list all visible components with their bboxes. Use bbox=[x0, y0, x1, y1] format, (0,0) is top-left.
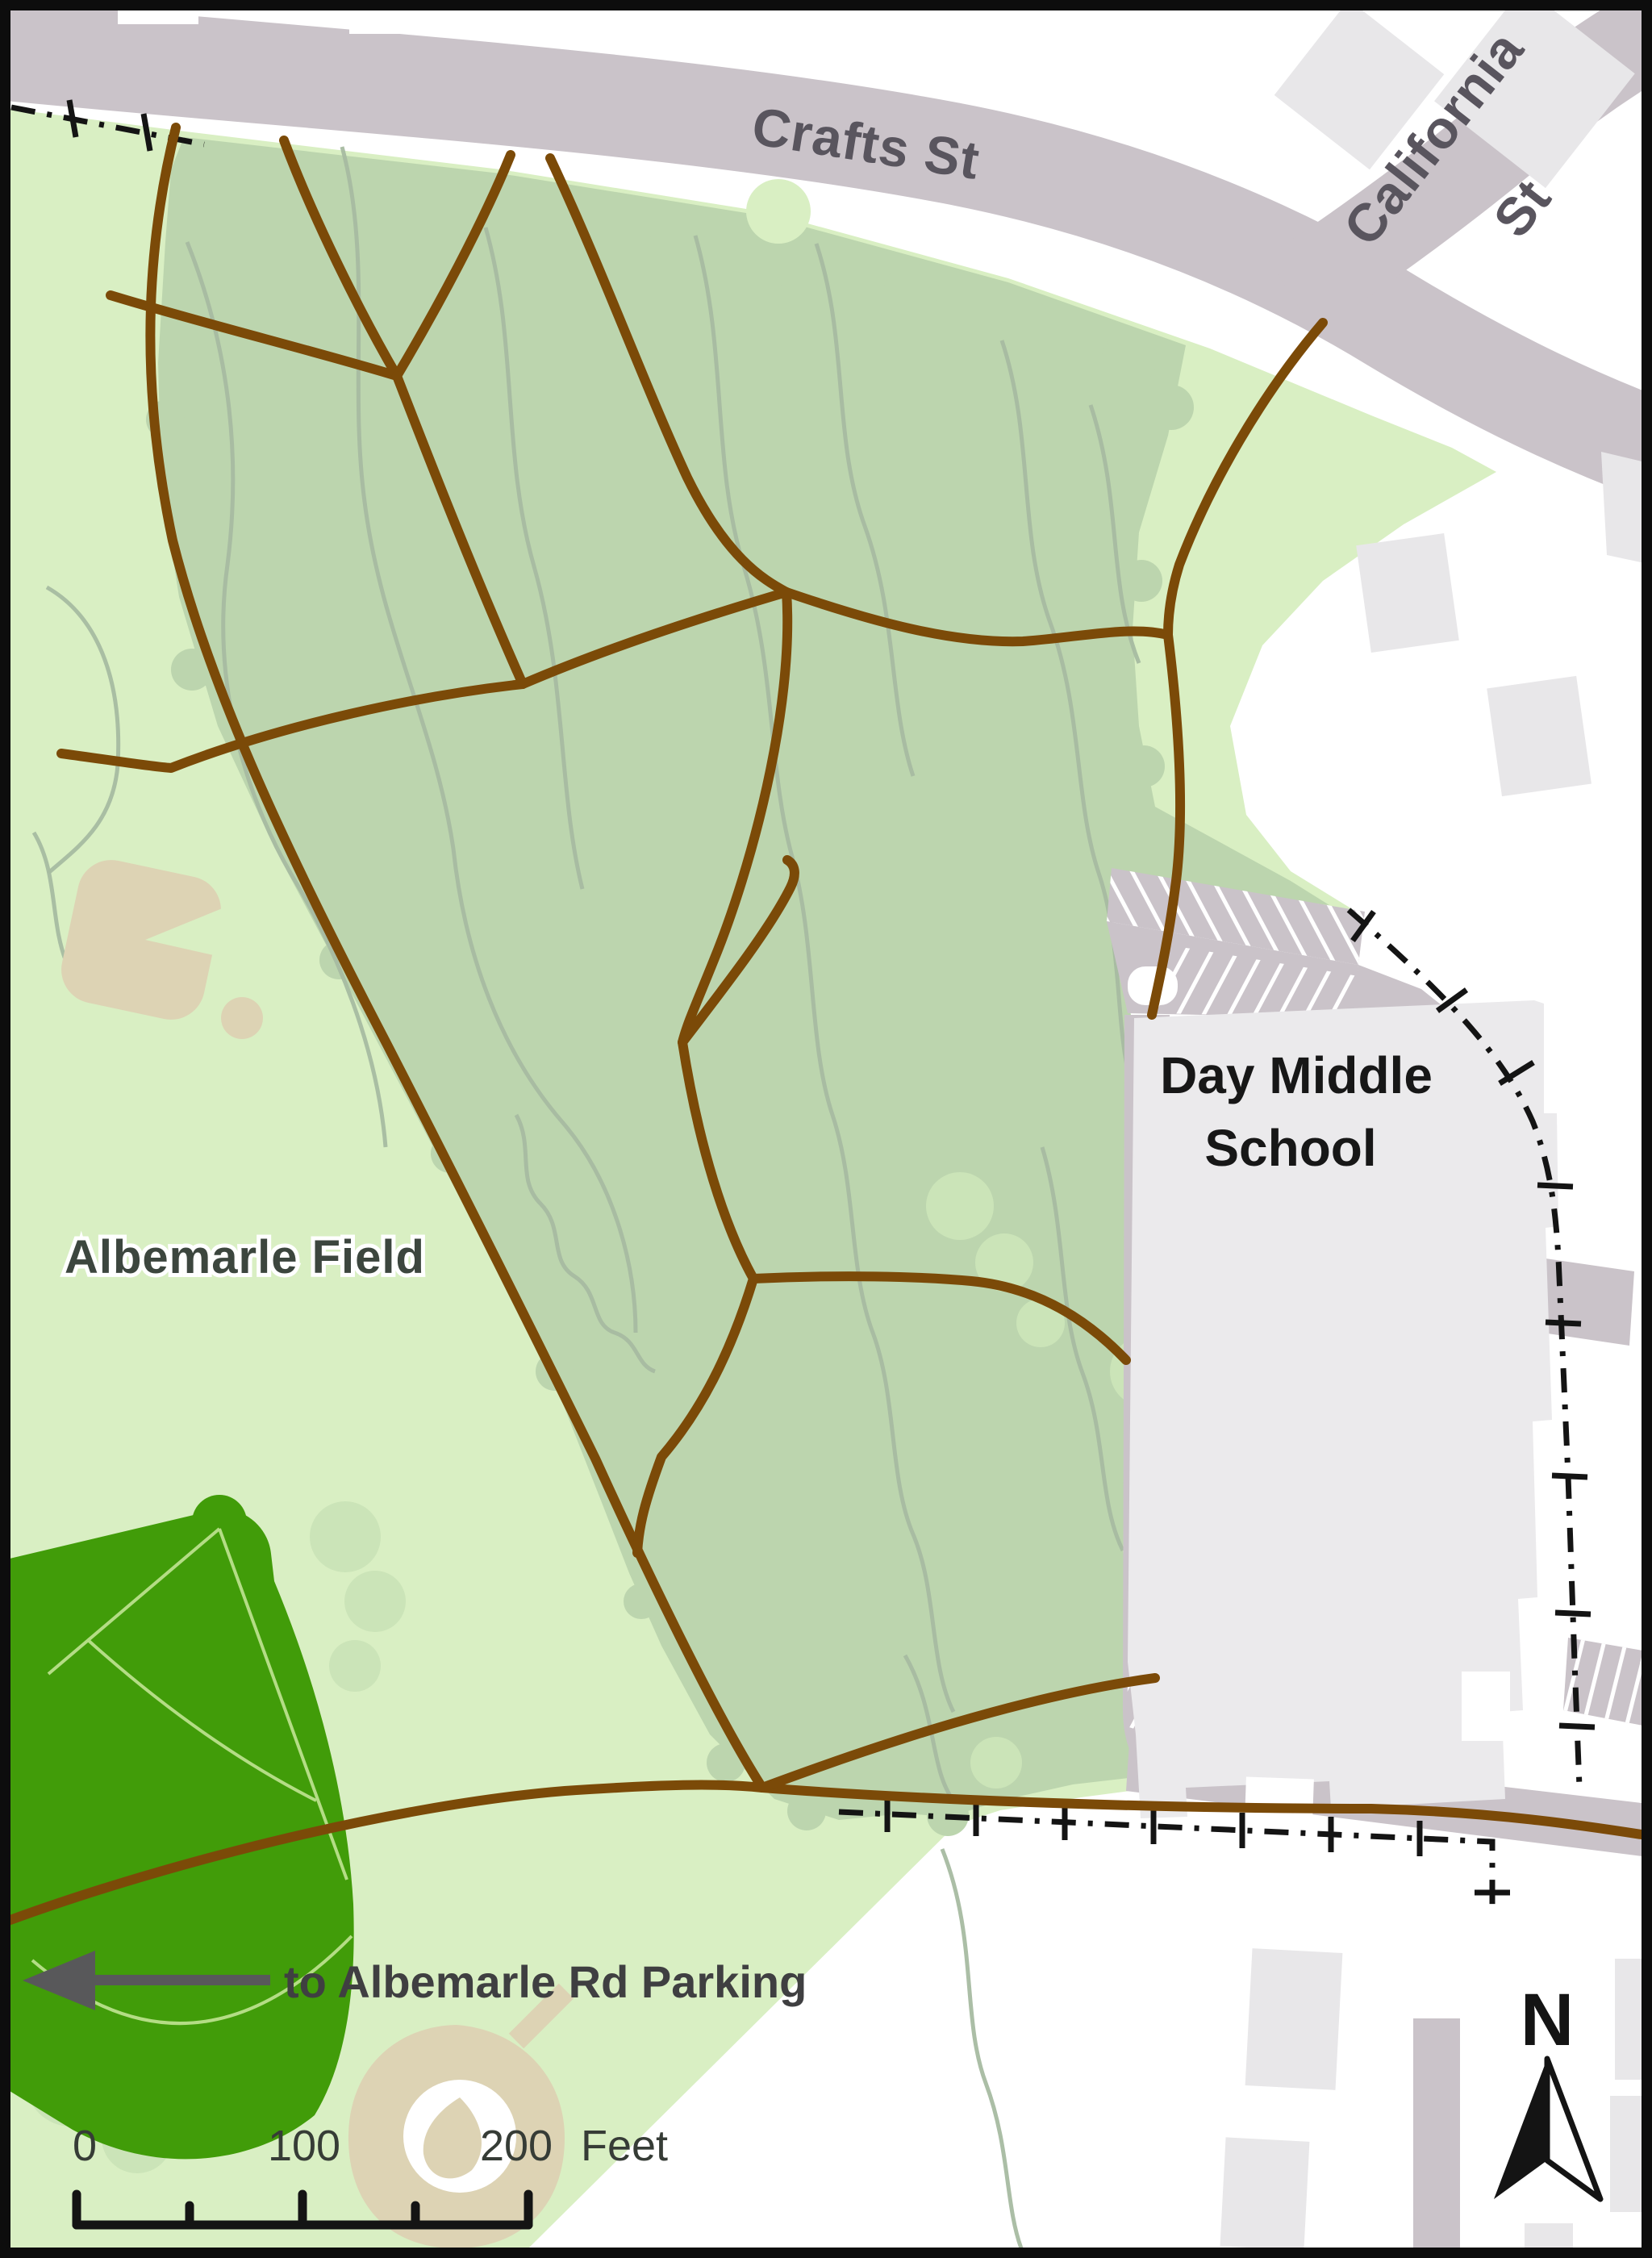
scale-tick-0: 0 bbox=[73, 2122, 97, 2170]
scale-tick-200: 200 bbox=[480, 2122, 553, 2170]
trail-map: Crafts St California St Day Middle Schoo… bbox=[0, 0, 1652, 2258]
north-label: N bbox=[1521, 1979, 1574, 2061]
school-label-line2: School bbox=[1204, 1119, 1376, 1177]
albemarle-field-label: Albemarle Field bbox=[65, 1231, 425, 1283]
map-canvas: Crafts St California St Day Middle Schoo… bbox=[0, 0, 1652, 2258]
left-arrow-shaft bbox=[81, 1975, 270, 1985]
scale-unit-label: Feet bbox=[581, 2122, 668, 2170]
driveway-gap bbox=[118, 10, 198, 24]
parking-direction-label: to Albemarle Rd Parking bbox=[284, 1956, 807, 2007]
school-label-line1: Day Middle bbox=[1160, 1046, 1433, 1104]
scale-tick-100: 100 bbox=[268, 2122, 340, 2170]
side-road bbox=[1413, 2018, 1460, 2248]
driveway-gap bbox=[349, 10, 443, 34]
